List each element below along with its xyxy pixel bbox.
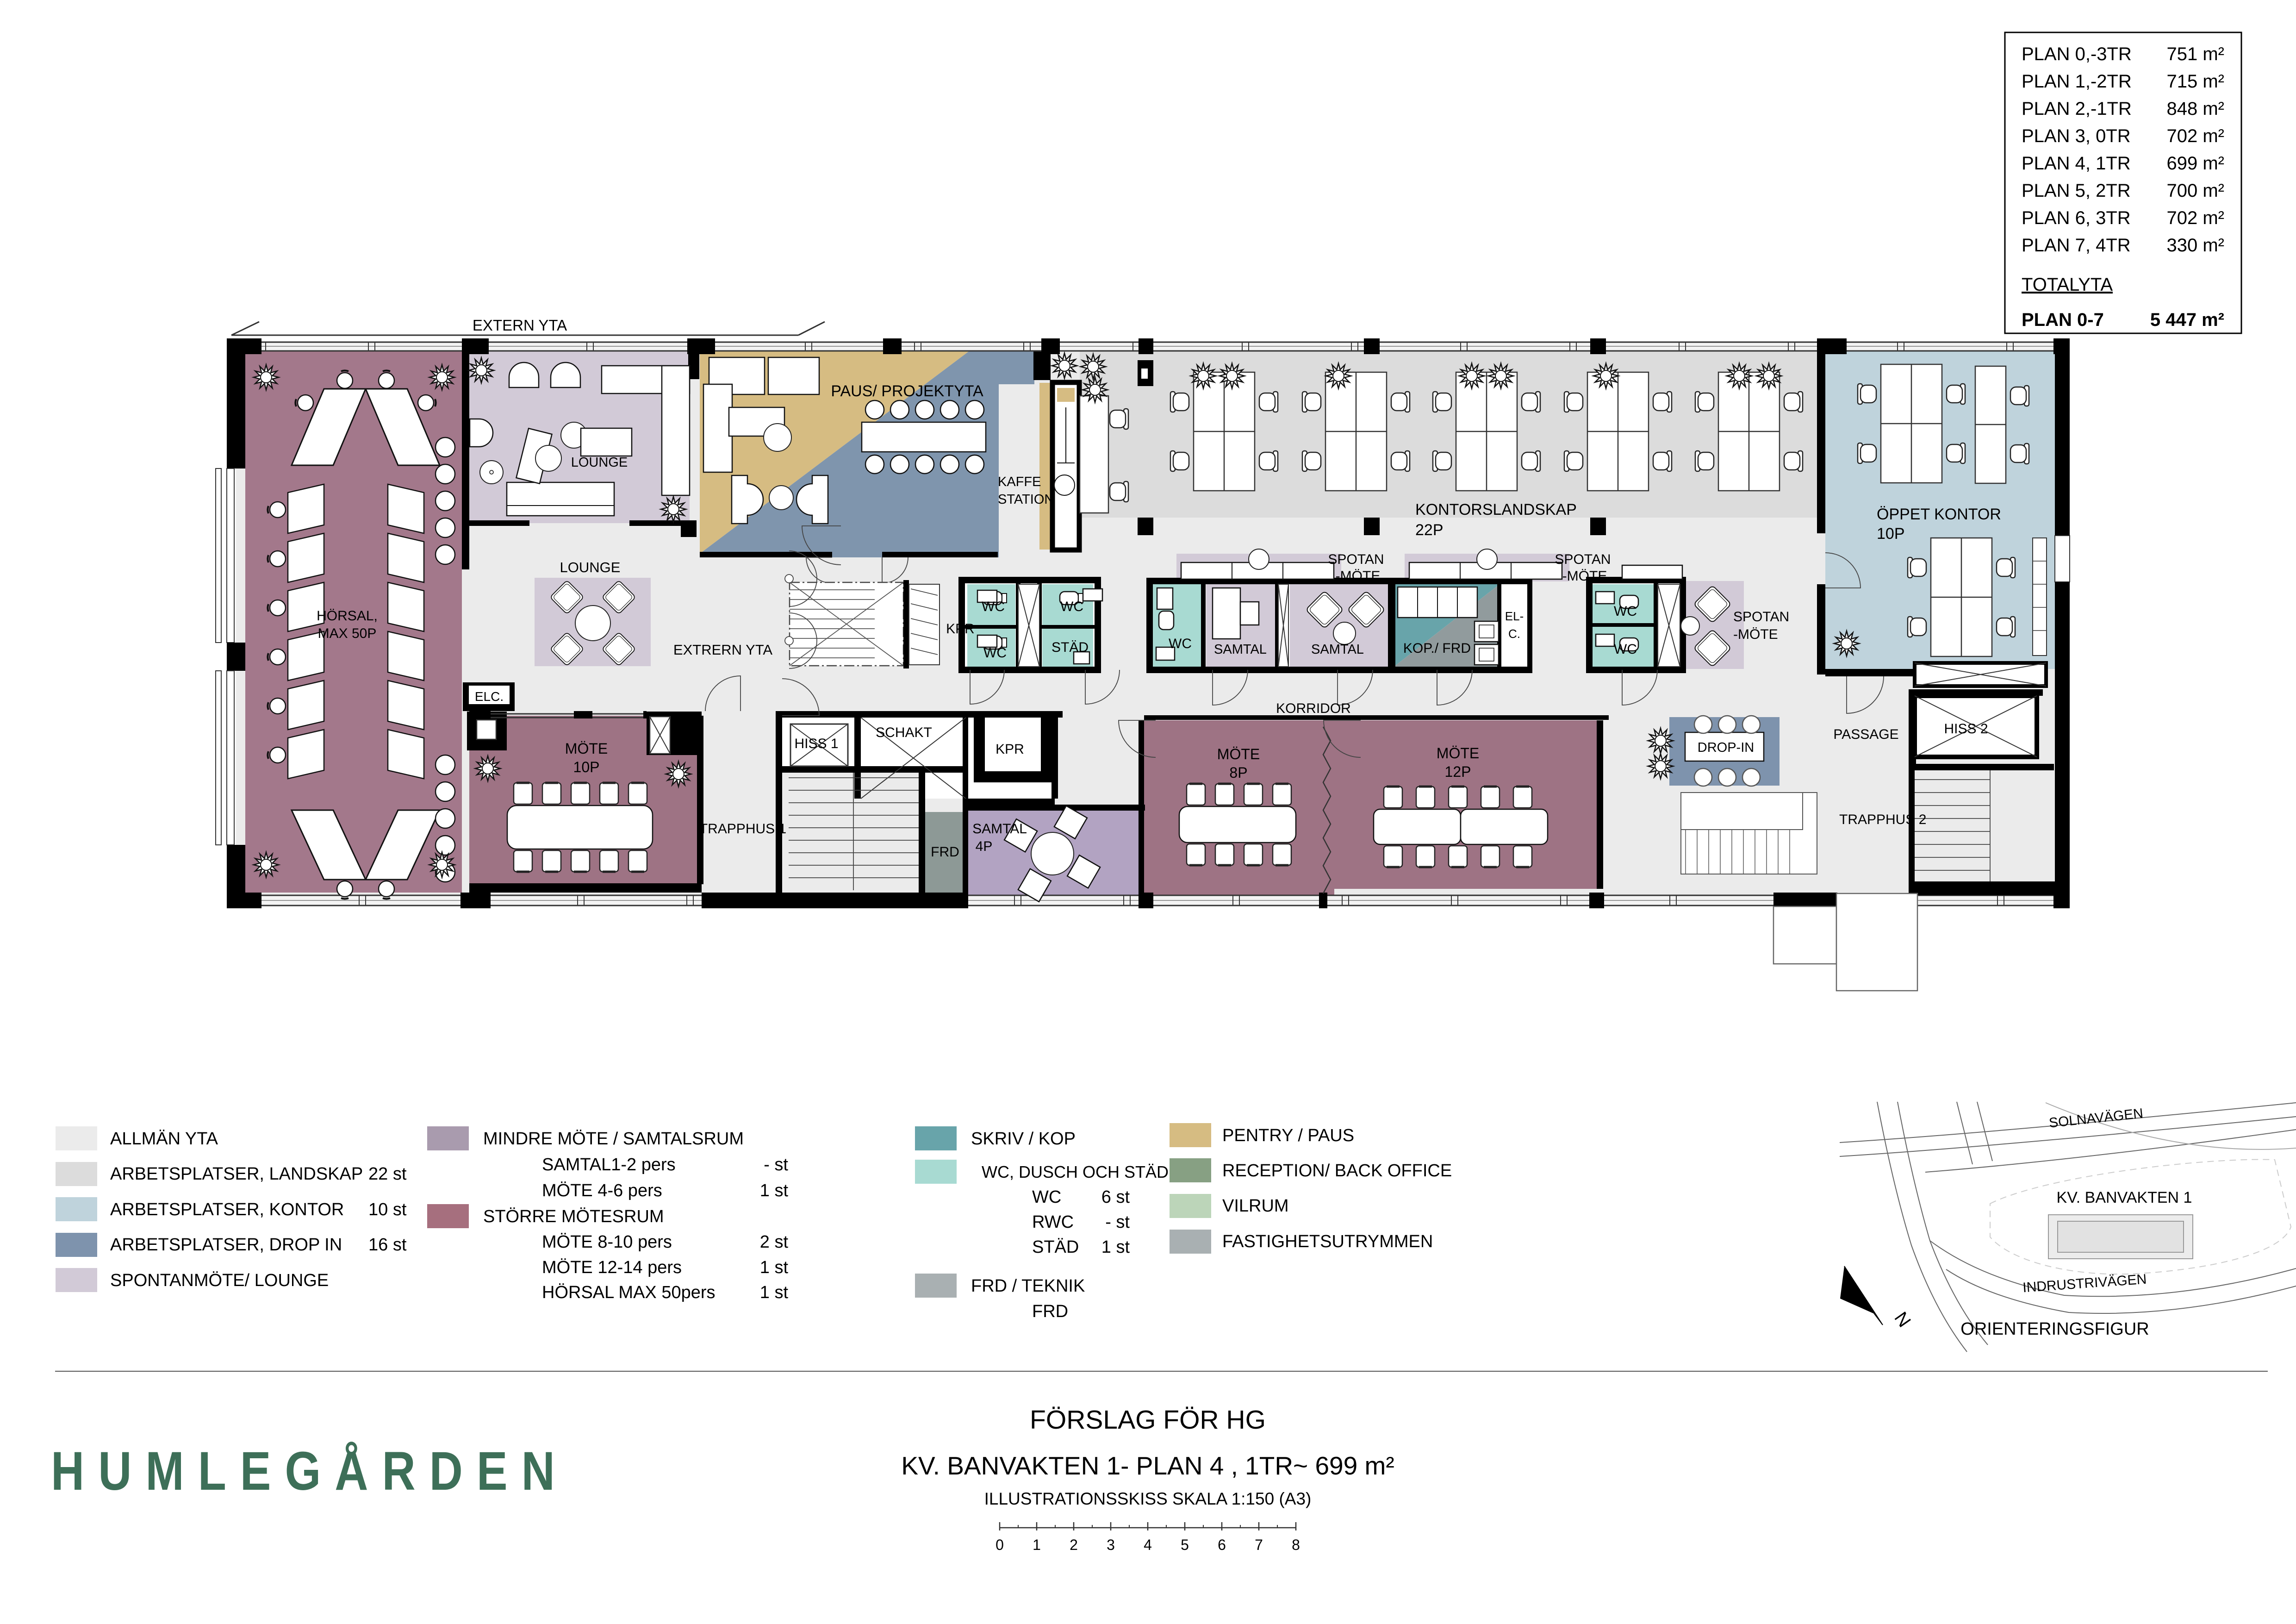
svg-text:22P: 22P — [1415, 521, 1444, 539]
svg-text:0: 0 — [996, 1537, 1004, 1553]
svg-text:- st: - st — [1105, 1212, 1130, 1232]
svg-text:PLAN 0-7: PLAN 0-7 — [2022, 310, 2104, 330]
svg-text:SKRIV / KOP: SKRIV / KOP — [971, 1129, 1076, 1149]
svg-text:PLAN 7, 4TR: PLAN 7, 4TR — [2022, 235, 2131, 256]
svg-text:- st: - st — [764, 1155, 788, 1174]
svg-text:1 st: 1 st — [760, 1283, 789, 1302]
svg-text:PLAN 6, 3TR: PLAN 6, 3TR — [2022, 208, 2131, 228]
svg-text:6: 6 — [1218, 1537, 1226, 1553]
svg-text:8: 8 — [1292, 1537, 1300, 1553]
svg-text:ALLMÄN YTA: ALLMÄN YTA — [110, 1129, 218, 1149]
svg-text:PLAN 5, 2TR: PLAN 5, 2TR — [2022, 181, 2131, 201]
svg-text:MÖTE 4-6 pers: MÖTE 4-6 pers — [542, 1181, 662, 1200]
svg-text:KPR: KPR — [996, 742, 1024, 757]
svg-text:SAMTAL: SAMTAL — [1214, 642, 1267, 657]
svg-text:KV. BANVAKTEN 1: KV. BANVAKTEN 1 — [2057, 1189, 2192, 1206]
svg-text:KONTORSLANDSKAP: KONTORSLANDSKAP — [1415, 501, 1577, 518]
svg-text:1 st: 1 st — [760, 1181, 789, 1200]
svg-text:EL-: EL- — [1505, 609, 1524, 623]
svg-text:751 m²: 751 m² — [2167, 44, 2225, 64]
svg-text:MÖTE 8-10 pers: MÖTE 8-10 pers — [542, 1232, 672, 1252]
svg-text:ARBETSPLATSER, KONTOR: ARBETSPLATSER, KONTOR — [110, 1200, 344, 1219]
svg-text:SAMTAL: SAMTAL — [972, 821, 1027, 837]
svg-text:KAFFE: KAFFE — [998, 475, 1041, 489]
svg-text:STÄD: STÄD — [1052, 640, 1089, 655]
svg-text:SAMTAL1-2 pers: SAMTAL1-2 pers — [542, 1155, 676, 1174]
svg-text:PLAN 1,-2TR: PLAN 1,-2TR — [2022, 71, 2132, 92]
svg-text:STÄD: STÄD — [1032, 1237, 1079, 1257]
svg-text:SAMTAL: SAMTAL — [1311, 642, 1364, 657]
svg-text:PLAN 4, 1TR: PLAN 4, 1TR — [2022, 153, 2131, 174]
svg-text:-MÖTE: -MÖTE — [1336, 568, 1381, 584]
svg-text:DROP-IN: DROP-IN — [1698, 740, 1754, 755]
svg-text:HUMLEGÅRDEN: HUMLEGÅRDEN — [51, 1441, 569, 1502]
svg-text:FRD / TEKNIK: FRD / TEKNIK — [971, 1276, 1085, 1296]
svg-text:MAX 50P: MAX 50P — [318, 626, 377, 641]
svg-text:PENTRY / PAUS: PENTRY / PAUS — [1222, 1126, 1354, 1145]
svg-text:700 m²: 700 m² — [2167, 181, 2225, 201]
svg-text:HISS 1: HISS 1 — [794, 736, 838, 751]
svg-text:PLAN 2,-1TR: PLAN 2,-1TR — [2022, 99, 2132, 119]
svg-text:8P: 8P — [1229, 764, 1247, 781]
svg-text:WC, DUSCH OCH STÄD: WC, DUSCH OCH STÄD — [982, 1162, 1169, 1181]
svg-text:EXTRERN YTA: EXTRERN YTA — [673, 642, 772, 658]
svg-text:10P: 10P — [573, 759, 600, 775]
svg-text:5 447 m²: 5 447 m² — [2150, 310, 2224, 330]
svg-text:RECEPTION/ BACK OFFICE: RECEPTION/ BACK OFFICE — [1222, 1161, 1452, 1181]
svg-text:6 st: 6 st — [1101, 1187, 1130, 1207]
svg-text:TRAPPHUS 2: TRAPPHUS 2 — [1839, 812, 1926, 827]
svg-text:MÖTE: MÖTE — [1437, 745, 1479, 762]
svg-text:INDRUSTRIVÄGEN: INDRUSTRIVÄGEN — [2022, 1272, 2147, 1296]
svg-text:10P: 10P — [1877, 525, 1905, 543]
svg-text:WC: WC — [1614, 642, 1637, 657]
svg-text:FRD: FRD — [931, 844, 959, 860]
svg-text:FRD: FRD — [1032, 1302, 1068, 1321]
svg-text:FÖRSLAG FÖR HG: FÖRSLAG FÖR HG — [1030, 1405, 1266, 1435]
svg-text:LOUNGE: LOUNGE — [571, 455, 628, 470]
svg-text:MÖTE 12-14 pers: MÖTE 12-14 pers — [542, 1258, 682, 1277]
svg-text:HÖRSAL MAX 50pers: HÖRSAL MAX 50pers — [542, 1283, 716, 1302]
svg-text:N: N — [1890, 1308, 1915, 1331]
svg-text:ÖPPET KONTOR: ÖPPET KONTOR — [1877, 506, 2001, 523]
svg-text:WC: WC — [1169, 636, 1192, 651]
svg-text:4: 4 — [1144, 1537, 1152, 1553]
svg-text:MÖTE: MÖTE — [1217, 746, 1260, 762]
svg-text:STÖRRE MÖTESRUM: STÖRRE MÖTESRUM — [483, 1207, 664, 1226]
svg-text:848 m²: 848 m² — [2167, 99, 2225, 119]
svg-text:PLAN 3, 0TR: PLAN 3, 0TR — [2022, 126, 2131, 146]
svg-text:702 m²: 702 m² — [2167, 208, 2225, 228]
svg-text:WC: WC — [1614, 604, 1637, 619]
svg-text:5: 5 — [1181, 1537, 1189, 1553]
svg-text:HÖRSAL,: HÖRSAL, — [317, 608, 378, 624]
svg-text:7: 7 — [1255, 1537, 1263, 1553]
svg-text:SPONTANMÖTE/ LOUNGE: SPONTANMÖTE/ LOUNGE — [110, 1271, 329, 1290]
svg-text:RWC: RWC — [1032, 1212, 1074, 1232]
svg-text:TOTALYTA: TOTALYTA — [2022, 275, 2113, 295]
svg-text:699 m²: 699 m² — [2167, 153, 2225, 174]
svg-text:PLAN 0,-3TR: PLAN 0,-3TR — [2022, 44, 2132, 64]
svg-text:ARBETSPLATSER, LANDSKAP: ARBETSPLATSER, LANDSKAP — [110, 1164, 363, 1184]
svg-text:KOP./ FRD: KOP./ FRD — [1403, 641, 1471, 656]
svg-text:1: 1 — [1033, 1537, 1041, 1553]
svg-text:KV. BANVAKTEN 1- PLAN 4 , 1TR~: KV. BANVAKTEN 1- PLAN 4 , 1TR~ 699 m² — [901, 1451, 1394, 1480]
svg-text:330 m²: 330 m² — [2167, 235, 2225, 256]
svg-text:2: 2 — [1070, 1537, 1078, 1553]
svg-text:SPOTAN: SPOTAN — [1328, 552, 1384, 567]
svg-text:ILLUSTRATIONSSKISS SKALA 1:150: ILLUSTRATIONSSKISS SKALA 1:150 (A3) — [984, 1489, 1312, 1508]
svg-text:ARBETSPLATSER, DROP IN: ARBETSPLATSER, DROP IN — [110, 1235, 342, 1255]
svg-text:SPOTAN: SPOTAN — [1733, 609, 1789, 625]
svg-text:16 st: 16 st — [368, 1235, 407, 1255]
svg-text:SCHAKT: SCHAKT — [876, 725, 932, 740]
svg-text:3: 3 — [1107, 1537, 1115, 1553]
svg-text:ELC.: ELC. — [475, 689, 504, 704]
svg-text:WC: WC — [982, 599, 1005, 614]
svg-text:LOUNGE: LOUNGE — [560, 559, 621, 575]
svg-text:702 m²: 702 m² — [2167, 126, 2225, 146]
svg-text:715 m²: 715 m² — [2167, 71, 2225, 92]
svg-text:WC: WC — [983, 645, 1007, 661]
svg-text:-MÖTE: -MÖTE — [1562, 568, 1607, 584]
svg-text:KPR: KPR — [946, 621, 975, 637]
svg-text:HISS 2: HISS 2 — [1944, 721, 1988, 737]
svg-text:4P: 4P — [976, 839, 993, 854]
svg-text:C.: C. — [1508, 627, 1520, 641]
svg-text:EXTERN YTA: EXTERN YTA — [473, 317, 567, 334]
svg-text:KORRIDOR: KORRIDOR — [1276, 701, 1351, 716]
svg-text:FASTIGHETSUTRYMMEN: FASTIGHETSUTRYMMEN — [1222, 1232, 1433, 1251]
svg-text:-MÖTE: -MÖTE — [1733, 627, 1778, 642]
svg-text:MÖTE: MÖTE — [565, 740, 608, 757]
svg-text:WC: WC — [1060, 599, 1083, 614]
svg-text:12P: 12P — [1445, 763, 1471, 780]
svg-text:PAUS/ PROJEKTYTA: PAUS/ PROJEKTYTA — [831, 382, 983, 400]
svg-text:TRAPPHUS 1: TRAPPHUS 1 — [699, 821, 786, 837]
svg-text:10 st: 10 st — [368, 1200, 407, 1219]
svg-text:PASSAGE: PASSAGE — [1833, 727, 1898, 742]
svg-text:VILRUM: VILRUM — [1222, 1196, 1289, 1216]
svg-text:2 st: 2 st — [760, 1232, 789, 1252]
svg-text:22 st: 22 st — [368, 1164, 407, 1184]
svg-text:ORIENTERINGSFIGUR: ORIENTERINGSFIGUR — [1960, 1319, 2149, 1339]
svg-text:STATION: STATION — [998, 492, 1054, 507]
svg-text:WC: WC — [1032, 1187, 1061, 1207]
svg-text:1 st: 1 st — [1101, 1237, 1130, 1257]
svg-text:MINDRE MÖTE / SAMTALSRUM: MINDRE MÖTE / SAMTALSRUM — [483, 1129, 744, 1149]
svg-text:SPOTAN: SPOTAN — [1555, 552, 1611, 567]
svg-text:1 st: 1 st — [760, 1258, 789, 1277]
